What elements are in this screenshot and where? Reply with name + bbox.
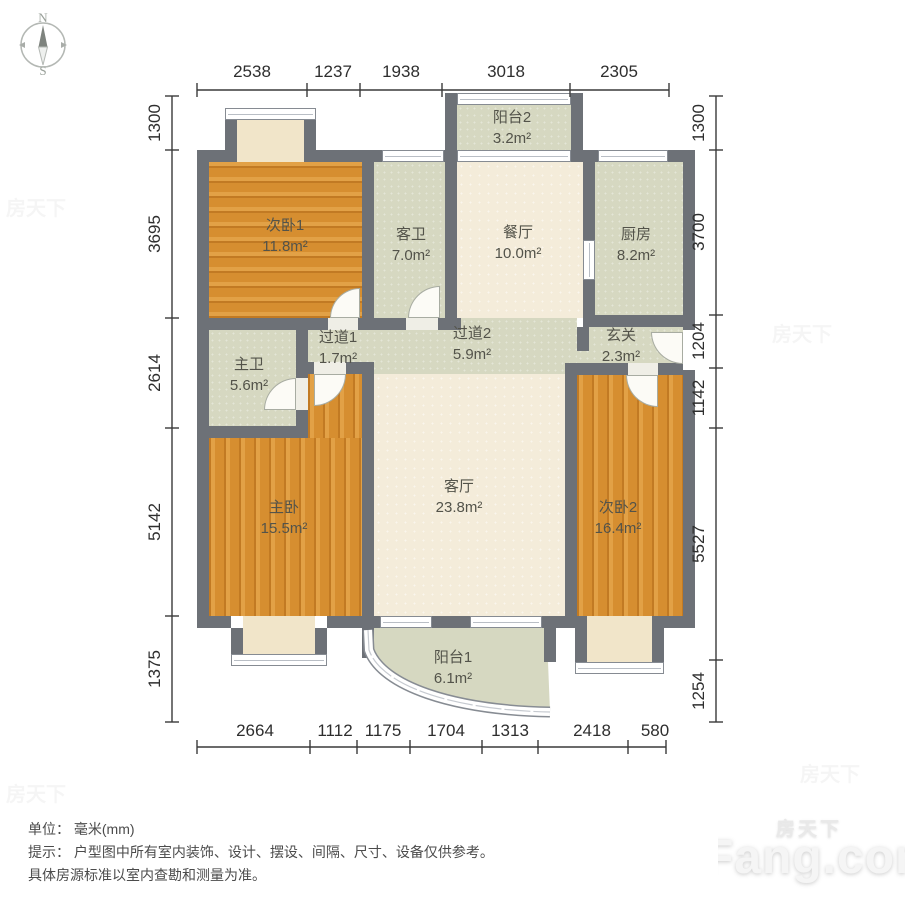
bay-sill-top xyxy=(237,120,304,162)
dim-right-6: 1254 xyxy=(689,672,709,710)
room-name: 次卧1 xyxy=(262,215,308,236)
room-secondary-bedroom-2: 次卧2 16.4m² xyxy=(595,497,642,539)
bay-sill-bottom-left xyxy=(243,616,315,654)
dim-bottom-7: 580 xyxy=(641,721,669,741)
room-area: 6.1m² xyxy=(434,668,472,689)
wall xyxy=(565,374,577,628)
door-opening xyxy=(406,318,438,330)
room-name: 餐厅 xyxy=(495,222,542,243)
window-guest-bathroom xyxy=(382,150,444,162)
dim-top-1: 2538 xyxy=(233,62,271,82)
window-bay-bottom-left xyxy=(231,654,327,666)
wall xyxy=(575,628,587,662)
dim-right-4: 1142 xyxy=(689,380,709,417)
room-area: 8.2m² xyxy=(617,245,655,266)
door-opening xyxy=(296,378,308,410)
footnotes: 单位： 毫米(mm) 提示： 户型图中所有室内装饰、设计、摆设、间隔、尺寸、设备… xyxy=(28,818,494,887)
fang-watermark: 房天下 Fang.com xyxy=(718,810,905,900)
window-kitchen xyxy=(598,150,668,162)
dim-right-3: 1204 xyxy=(689,322,709,360)
wall xyxy=(652,628,664,662)
room-name: 次卧2 xyxy=(595,497,642,518)
wall xyxy=(445,93,457,162)
room-name: 阳台1 xyxy=(434,647,472,668)
room-area: 11.8m² xyxy=(262,236,308,257)
room-name: 玄关 xyxy=(602,325,640,346)
dim-bottom-1: 2664 xyxy=(236,721,274,741)
dim-right-1: 1300 xyxy=(689,104,709,142)
room-area: 5.9m² xyxy=(453,344,491,365)
room-master-bathroom: 主卫 5.6m² xyxy=(230,354,268,396)
room-area: 2.3m² xyxy=(602,346,640,367)
dim-left-3: 2614 xyxy=(145,354,165,392)
window-balcony-2-inner-door xyxy=(457,150,571,162)
dim-bottom-6: 2418 xyxy=(573,721,611,741)
wall xyxy=(197,426,308,438)
dim-bottom-3: 1175 xyxy=(365,721,402,741)
room-name: 客厅 xyxy=(436,476,483,497)
faint-watermark: 房天下 xyxy=(6,778,66,807)
dim-left-4: 5142 xyxy=(145,503,165,541)
dim-left-2: 3695 xyxy=(145,215,165,253)
room-kitchen: 厨房 8.2m² xyxy=(617,224,655,266)
dim-bottom-4: 1704 xyxy=(427,721,465,741)
door-living-balcony-sliding xyxy=(380,616,432,628)
room-hallway-1: 过道1 1.7m² xyxy=(319,327,357,369)
room-area: 7.0m² xyxy=(392,245,430,266)
wall xyxy=(315,628,327,656)
dim-left-5: 1375 xyxy=(145,650,165,688)
room-name: 厨房 xyxy=(617,224,655,245)
dim-top-2: 1237 xyxy=(314,62,352,82)
room-area: 15.5m² xyxy=(261,518,308,539)
room-name: 主卫 xyxy=(230,354,268,375)
faint-watermark: 房天下 xyxy=(800,758,860,787)
room-area: 23.8m² xyxy=(436,497,483,518)
room-name: 客卫 xyxy=(392,224,430,245)
room-name: 阳台2 xyxy=(493,107,531,128)
floor-secondary-bedroom-2 xyxy=(577,375,683,616)
door-kitchen-sliding xyxy=(583,240,595,280)
room-hallway-2: 过道2 5.9m² xyxy=(453,323,491,365)
dim-left-1: 1300 xyxy=(145,104,165,142)
dim-right-2: 3700 xyxy=(689,213,709,251)
window-bay-bottom-right xyxy=(575,662,664,674)
window-bay-top xyxy=(225,108,316,120)
room-dining-room: 餐厅 10.0m² xyxy=(495,222,542,264)
dim-top-3: 1938 xyxy=(382,62,420,82)
room-area: 1.7m² xyxy=(319,348,357,369)
room-area: 10.0m² xyxy=(495,243,542,264)
wall xyxy=(197,150,209,628)
room-balcony-1: 阳台1 6.1m² xyxy=(434,647,472,689)
compass-south-label: S xyxy=(39,63,46,76)
bay-sill-bottom-right xyxy=(587,616,652,662)
wall xyxy=(231,628,243,656)
compass-north-label: N xyxy=(38,10,48,25)
room-master-bedroom: 主卧 15.5m² xyxy=(261,497,308,539)
dim-top-5: 2305 xyxy=(600,62,638,82)
wall xyxy=(445,162,457,318)
wall xyxy=(571,93,583,162)
wall xyxy=(362,374,374,628)
room-entry: 玄关 2.3m² xyxy=(602,325,640,367)
room-area: 3.2m² xyxy=(493,128,531,149)
wall xyxy=(304,120,316,162)
room-name: 主卧 xyxy=(261,497,308,518)
floorplan-canvas: N S 房天下 房天下 房天下 房天下 2538 12 xyxy=(0,0,905,900)
tip-note-line1: 提示： 户型图中所有室内装饰、设计、摆设、间隔、尺寸、设备仅供参考。 xyxy=(28,841,494,864)
window-balcony-2 xyxy=(457,93,571,105)
wall xyxy=(577,327,589,351)
dim-top-4: 3018 xyxy=(487,62,525,82)
room-name: 过道2 xyxy=(453,323,491,344)
room-name: 过道1 xyxy=(319,327,357,348)
fang-watermark-en: Fang.com xyxy=(718,830,905,885)
room-balcony-2: 阳台2 3.2m² xyxy=(493,107,531,149)
wall xyxy=(652,616,695,628)
wall xyxy=(565,616,587,628)
wall xyxy=(197,616,231,628)
room-living-room: 客厅 23.8m² xyxy=(436,476,483,518)
wall xyxy=(225,120,237,162)
door-living-balcony-sliding xyxy=(470,616,542,628)
wall xyxy=(583,162,595,315)
room-secondary-bedroom-1: 次卧1 11.8m² xyxy=(262,215,308,257)
tip-note-line2: 具体房源标准以室内查勘和测量为准。 xyxy=(28,864,494,887)
compass: N S xyxy=(12,8,74,76)
compass-needle-north xyxy=(39,25,48,47)
unit-note: 单位： 毫米(mm) xyxy=(28,818,494,841)
faint-watermark: 房天下 xyxy=(6,192,66,221)
faint-watermark: 房天下 xyxy=(772,318,832,347)
room-area: 5.6m² xyxy=(230,375,268,396)
room-guest-bathroom: 客卫 7.0m² xyxy=(392,224,430,266)
dim-bottom-5: 1313 xyxy=(491,721,529,741)
dim-right-5: 5527 xyxy=(689,525,709,563)
room-area: 16.4m² xyxy=(595,518,642,539)
wall xyxy=(362,162,374,318)
dim-bottom-2: 1112 xyxy=(317,721,352,741)
